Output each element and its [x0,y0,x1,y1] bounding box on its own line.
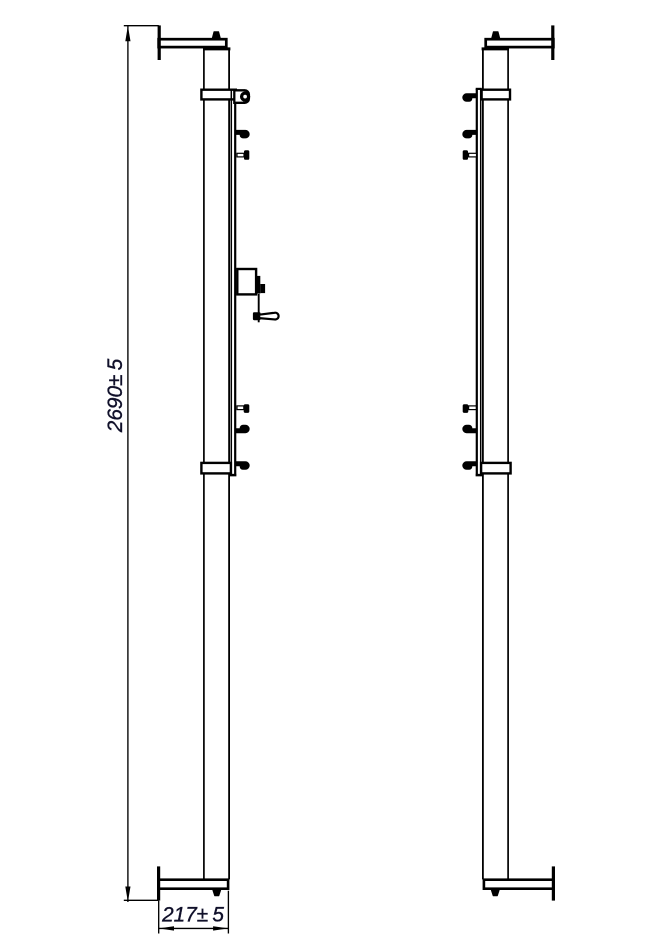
svg-text:217± 5: 217± 5 [161,904,224,927]
svg-text:2690± 5: 2690± 5 [104,358,127,433]
